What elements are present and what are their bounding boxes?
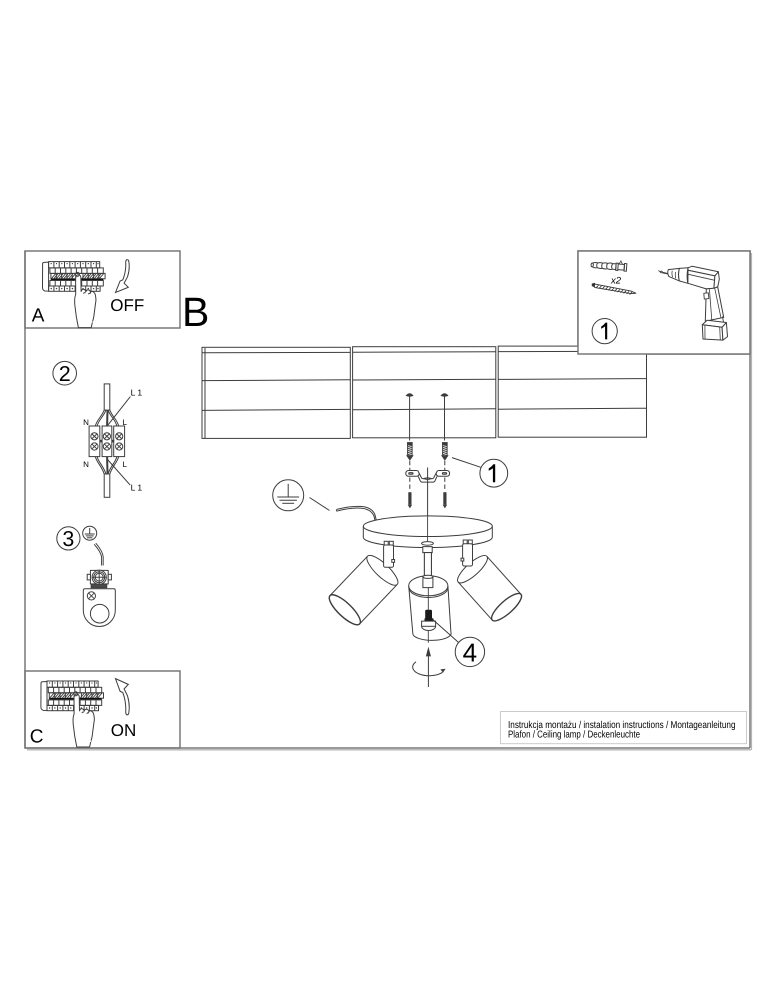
- svg-text:ON: ON: [111, 721, 137, 740]
- svg-text:N: N: [83, 460, 89, 469]
- svg-text:L: L: [123, 460, 128, 469]
- svg-text:L: L: [123, 418, 128, 427]
- svg-text:Plafon / Ceiling lamp / Decken: Plafon / Ceiling lamp / Deckenleuchte: [508, 729, 640, 740]
- svg-text:OFF: OFF: [110, 296, 144, 315]
- svg-text:C: C: [30, 727, 44, 748]
- svg-text:A: A: [32, 306, 45, 327]
- svg-text:4: 4: [463, 637, 477, 667]
- svg-text:L 1: L 1: [131, 483, 143, 493]
- svg-text:L 1: L 1: [131, 388, 143, 398]
- svg-text:2: 2: [59, 362, 71, 386]
- svg-text:3: 3: [62, 527, 74, 551]
- svg-text:x2: x2: [610, 276, 622, 287]
- svg-text:N: N: [83, 418, 89, 427]
- svg-text:B: B: [182, 289, 209, 335]
